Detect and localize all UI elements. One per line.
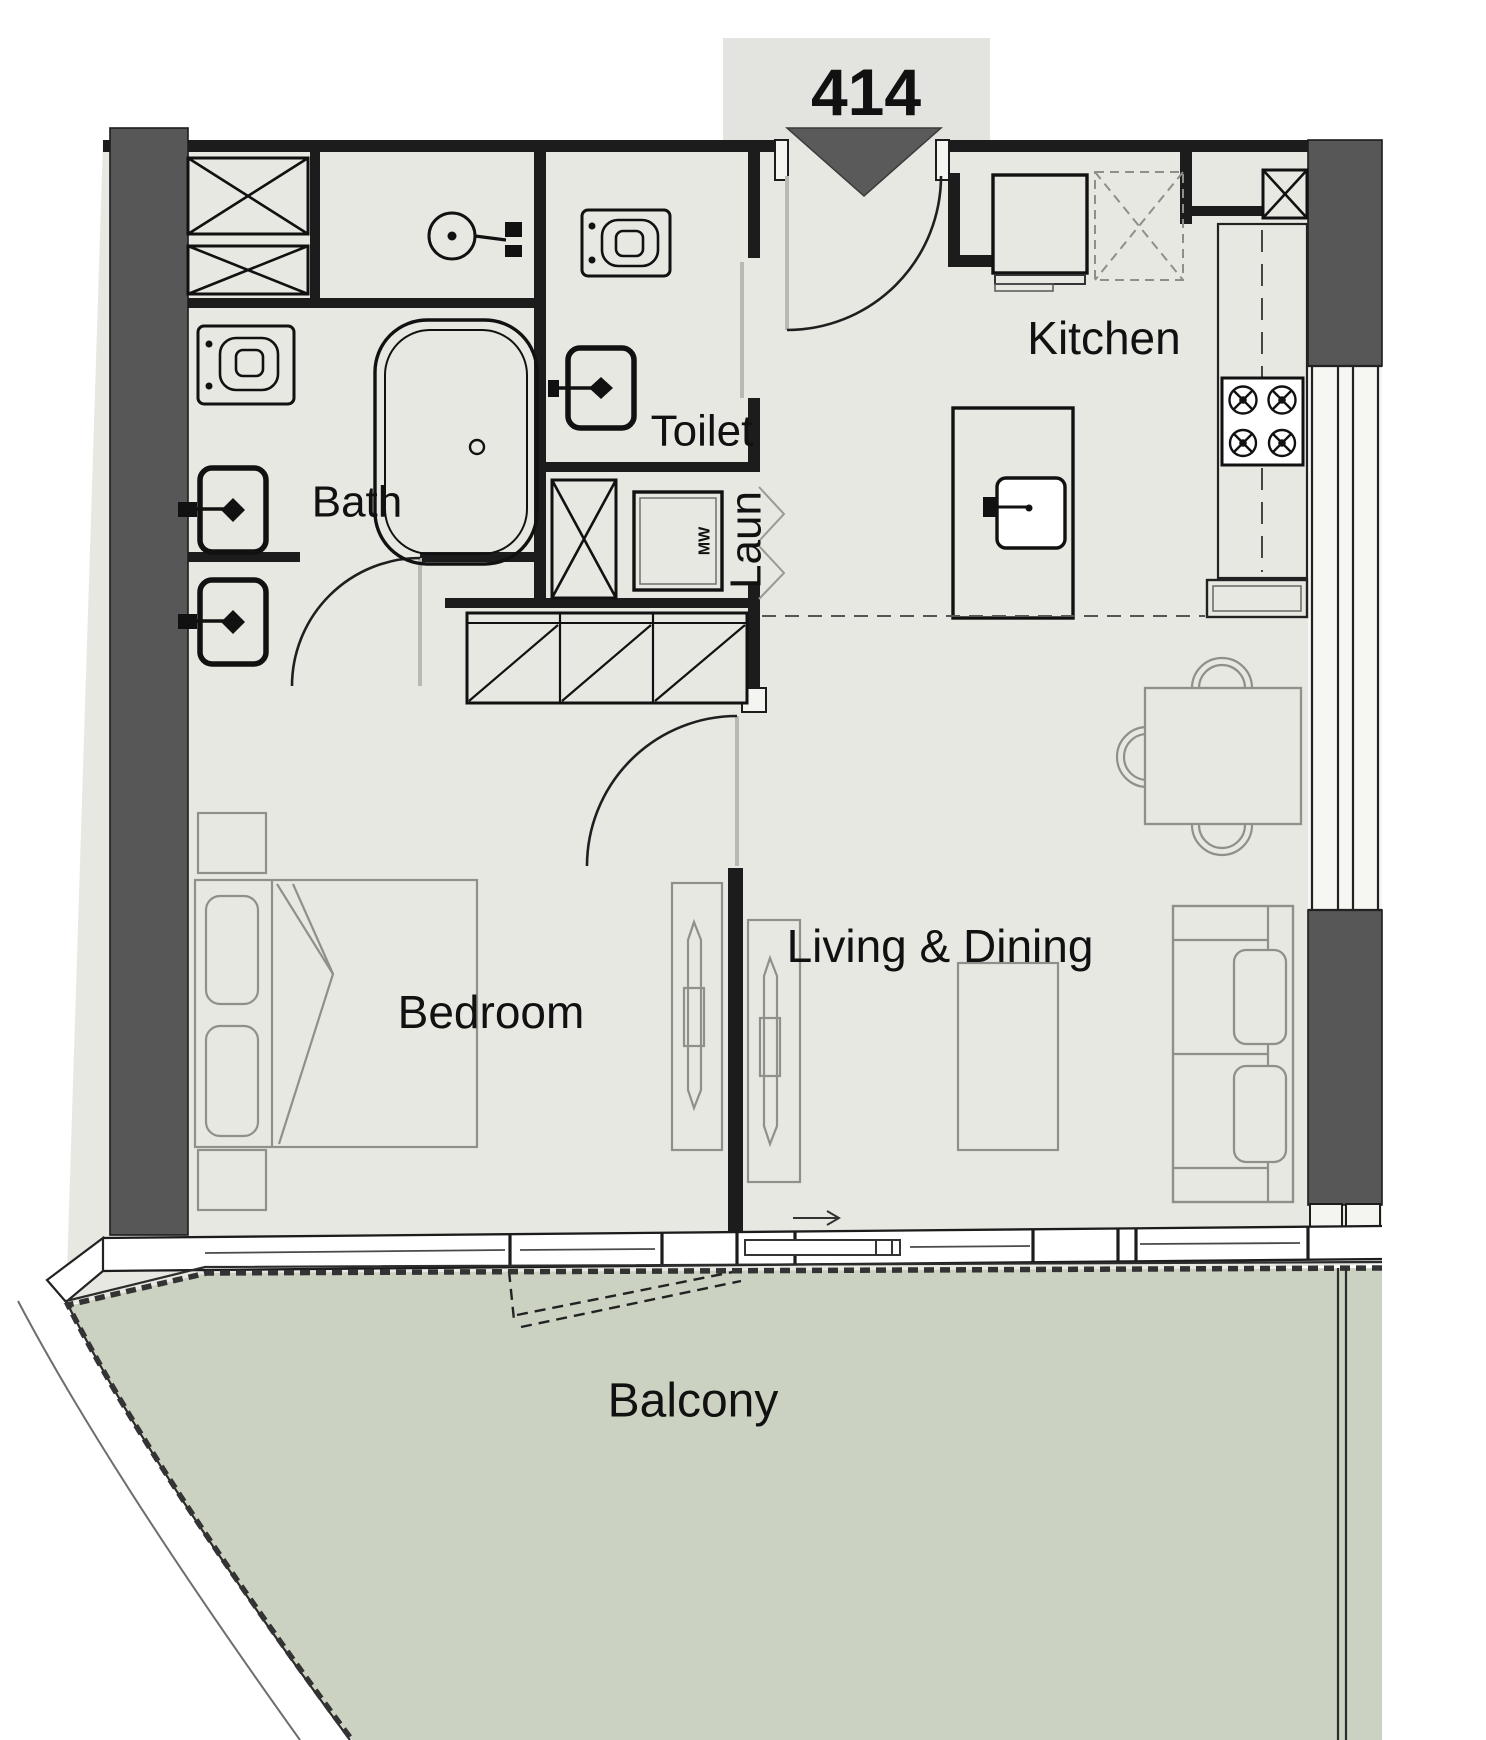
balcony-label: Balcony (608, 1375, 779, 1428)
entry-door-jamb-right (936, 140, 949, 180)
structural-wall-right-bottom (1308, 910, 1382, 1205)
shaft-boxes (188, 158, 308, 294)
laundry-label: Laun (722, 491, 771, 589)
duct-box (1263, 170, 1307, 218)
dining-table (1145, 688, 1301, 824)
entry-door-jamb-left (775, 140, 788, 180)
structural-wall-right-top (1308, 140, 1382, 366)
room-laundry: MW (552, 480, 722, 598)
island-sink (997, 478, 1065, 548)
washer-label: MW (697, 526, 714, 555)
structural-wall-left (110, 128, 188, 1235)
wall-bedroom-living (728, 868, 743, 1234)
fridge (993, 175, 1087, 291)
kitchen-label: Kitchen (1027, 312, 1180, 364)
living-dining-label: Living & Dining (787, 920, 1094, 972)
wardrobe (467, 613, 747, 703)
bedroom-label: Bedroom (398, 986, 585, 1038)
toilet-label: Toilet (651, 407, 754, 456)
kitchen-island (953, 408, 1073, 618)
unit-number-label: 414 (811, 55, 921, 129)
sofa-cushion (1234, 1066, 1286, 1162)
bath-label: Bath (312, 478, 403, 527)
bidet-fixture (198, 326, 294, 404)
floor-plan: 414 (0, 0, 1486, 1740)
washing-machine: MW (634, 492, 722, 590)
toilet-fixture (582, 210, 670, 276)
sofa-cushion (1234, 950, 1286, 1044)
stove (1222, 378, 1303, 465)
